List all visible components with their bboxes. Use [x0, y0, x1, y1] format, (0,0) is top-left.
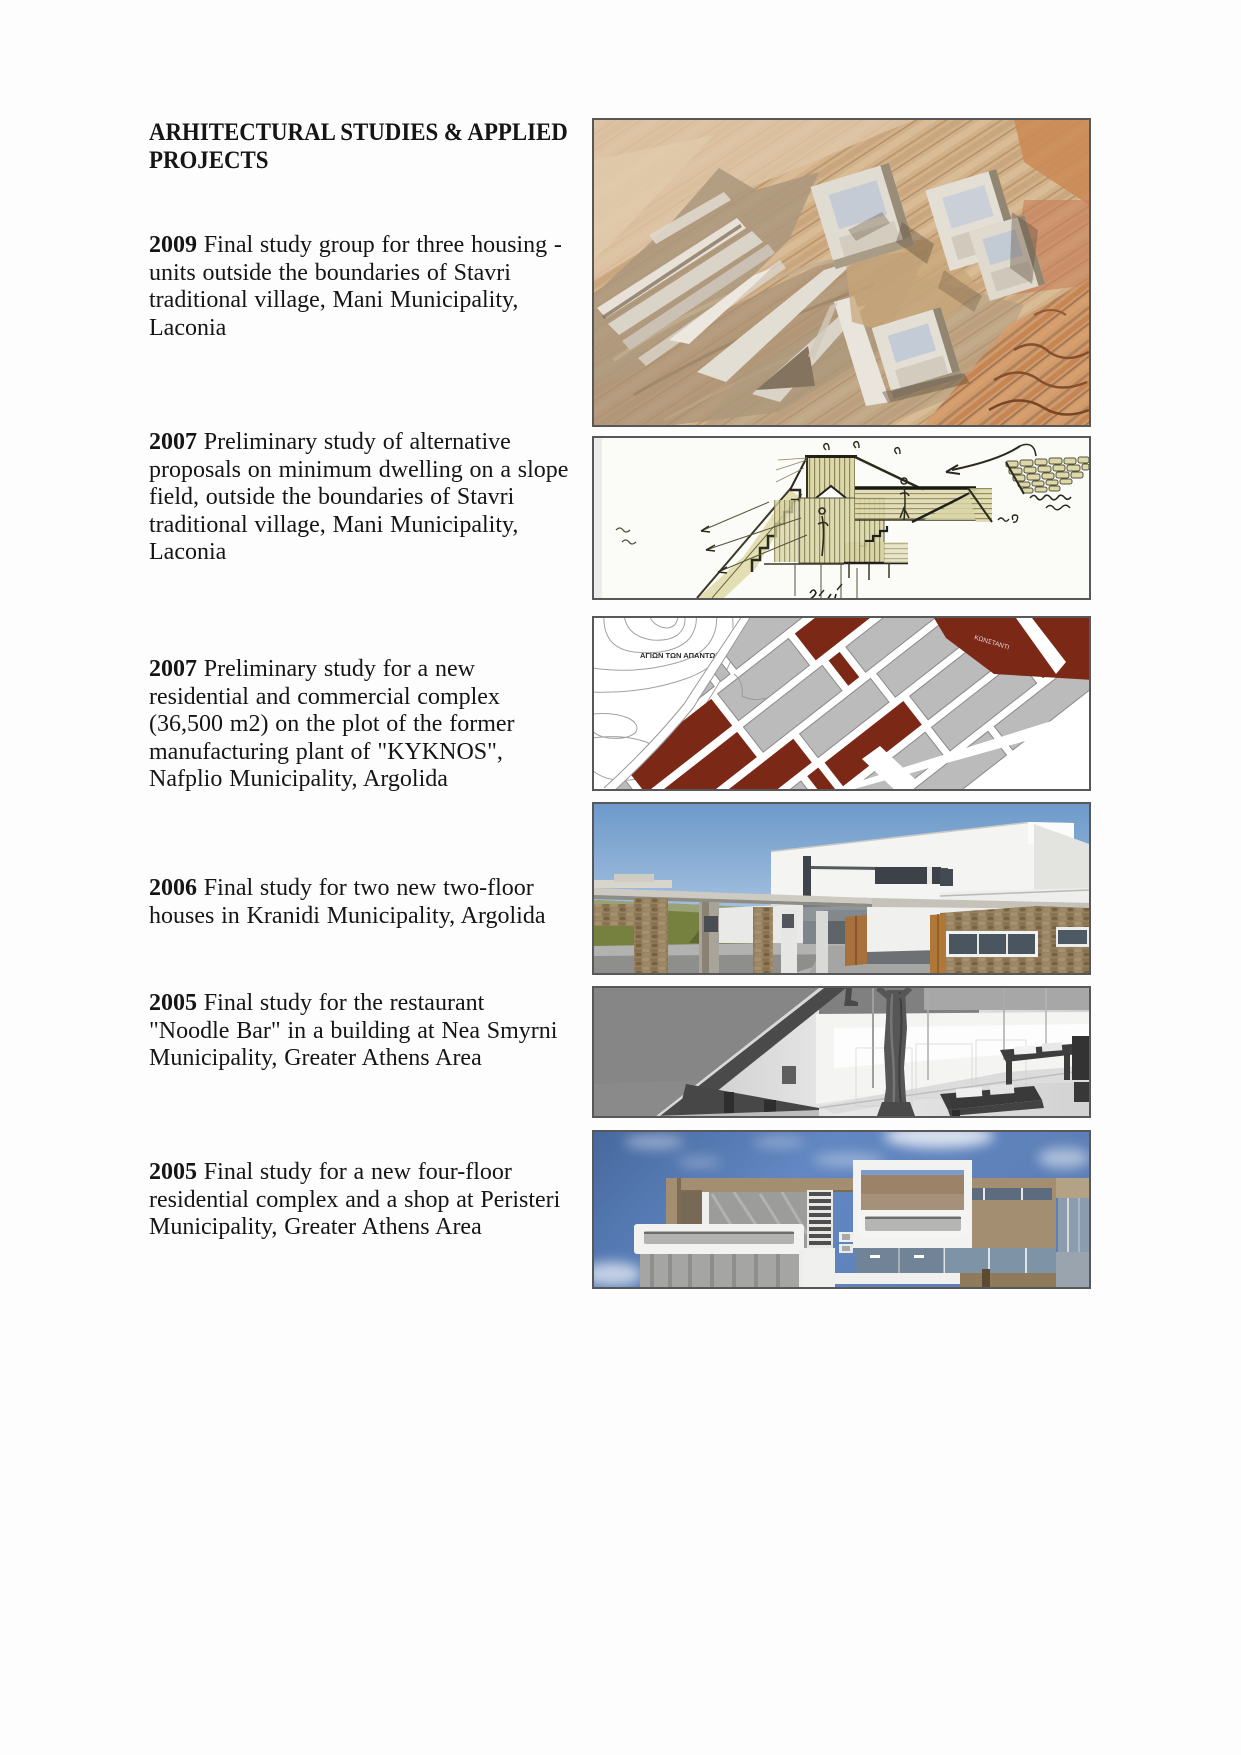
svg-text:ΑΓΙΩΝ ΤΩΝ ΑΠΑΝΤΩΝ: ΑΓΙΩΝ ΤΩΝ ΑΠΑΝΤΩΝ: [640, 651, 721, 660]
